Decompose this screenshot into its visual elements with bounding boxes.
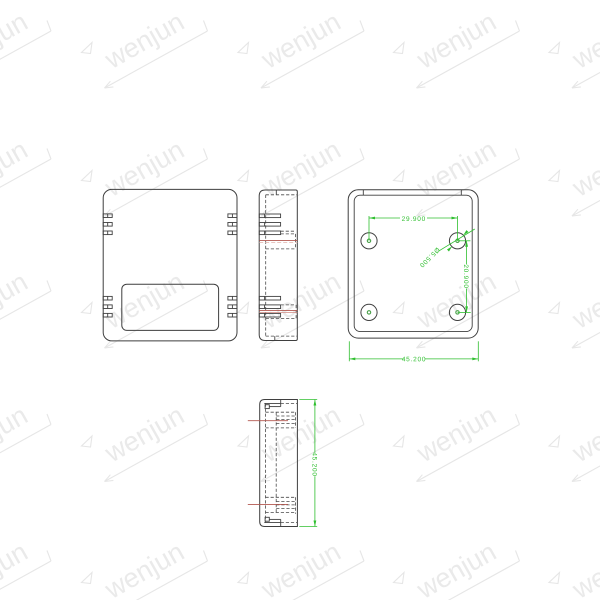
svg-text:45.200: 45.200 [402,356,426,363]
svg-text:Ø5.500: Ø5.500 [417,246,440,269]
svg-text:45.200: 45.200 [311,452,318,476]
svg-text:29.900: 29.900 [402,216,426,223]
svg-text:20.900: 20.900 [462,264,469,288]
